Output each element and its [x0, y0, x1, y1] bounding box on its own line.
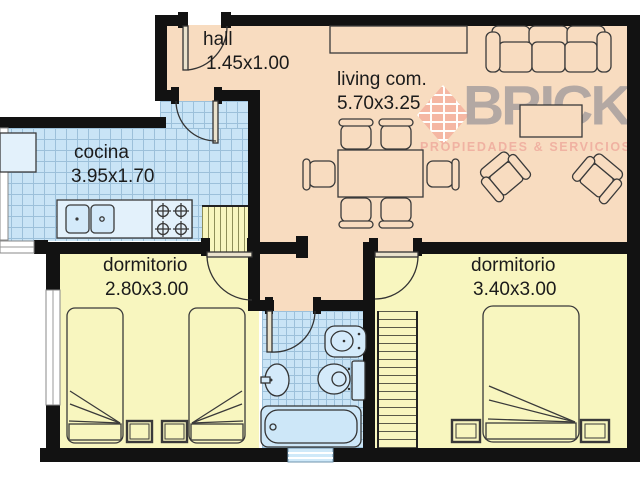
dining-table — [338, 150, 423, 197]
bedroom2-door — [375, 252, 418, 299]
dining-chair — [339, 119, 373, 149]
armchair — [571, 149, 628, 206]
living-label: living com. — [337, 70, 427, 90]
sideboard — [330, 26, 467, 53]
sofa — [486, 26, 611, 72]
kitchen-window-bottom — [0, 241, 34, 253]
bath-sink — [261, 364, 289, 396]
kitchen-counter-left — [0, 133, 36, 172]
dining-chair — [379, 198, 413, 228]
bedroom1-dims: 2.80x3.00 — [105, 280, 188, 300]
nightstand — [452, 420, 480, 442]
kitchen-door — [176, 101, 218, 143]
dining-chair — [379, 119, 413, 149]
bidet — [325, 326, 366, 357]
bedroom1-furniture — [67, 308, 245, 443]
dining-chair — [303, 159, 335, 190]
bed-single-2 — [189, 308, 245, 443]
hall-dims: 1.45x1.00 — [206, 54, 289, 74]
bedroom2-dims: 3.40x3.00 — [473, 280, 556, 300]
nightstand — [127, 421, 152, 442]
bed-double — [483, 306, 579, 442]
living-furniture — [303, 26, 628, 228]
nightstand — [162, 421, 187, 442]
bedroom1-window — [46, 290, 60, 405]
bathroom-window — [288, 448, 333, 462]
armchair — [475, 147, 532, 204]
floorplan: BRICK PROPIEDADES & SERVICIOS — [0, 0, 640, 480]
bedroom1-door — [207, 252, 252, 300]
stove — [152, 200, 192, 238]
nightstand — [581, 420, 609, 442]
dining-chair — [427, 159, 459, 190]
cocina-label: cocina — [74, 143, 129, 163]
bathroom-door — [267, 311, 315, 352]
bathroom-fixtures — [261, 326, 366, 447]
bed-single-1 — [67, 308, 123, 443]
dining-chair — [339, 198, 373, 228]
toilet — [318, 361, 365, 400]
floorplan-drawing — [0, 0, 640, 480]
bedroom1-label: dormitorio — [103, 256, 187, 276]
bedroom2-furniture — [452, 306, 609, 442]
hall-label: hall — [203, 30, 233, 50]
bathtub — [261, 406, 361, 447]
coffee-table — [520, 105, 582, 137]
bedroom2-label: dormitorio — [471, 256, 555, 276]
living-dims: 5.70x3.25 — [337, 94, 420, 114]
dining-set — [303, 119, 459, 228]
cocina-dims: 3.95x1.70 — [71, 167, 154, 187]
